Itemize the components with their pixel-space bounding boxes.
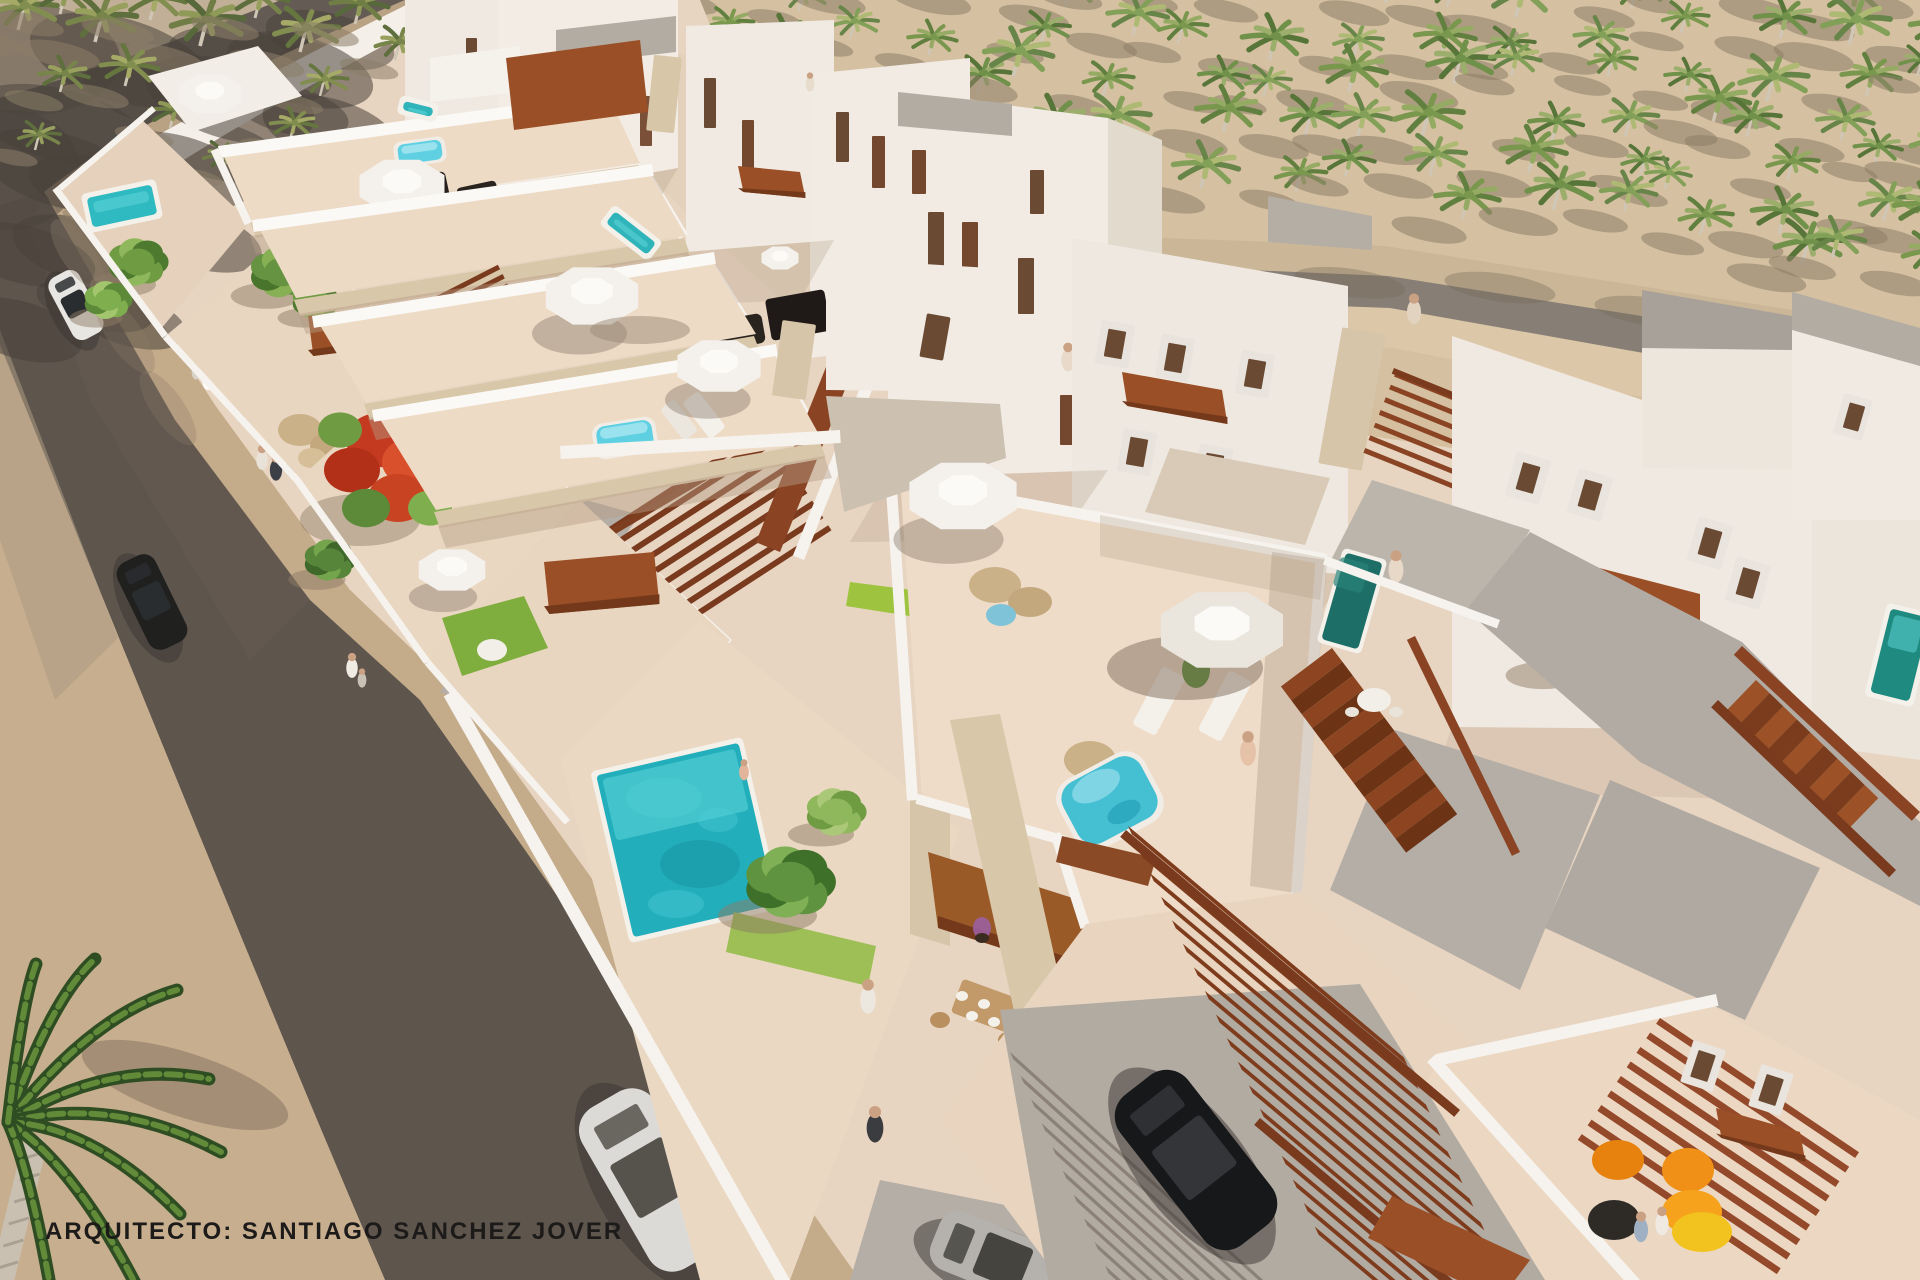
svg-text:ARQUITECTO: SANTIAGO SANCHEZ J: ARQUITECTO: SANTIAGO SANCHEZ JOVER bbox=[45, 1218, 623, 1245]
